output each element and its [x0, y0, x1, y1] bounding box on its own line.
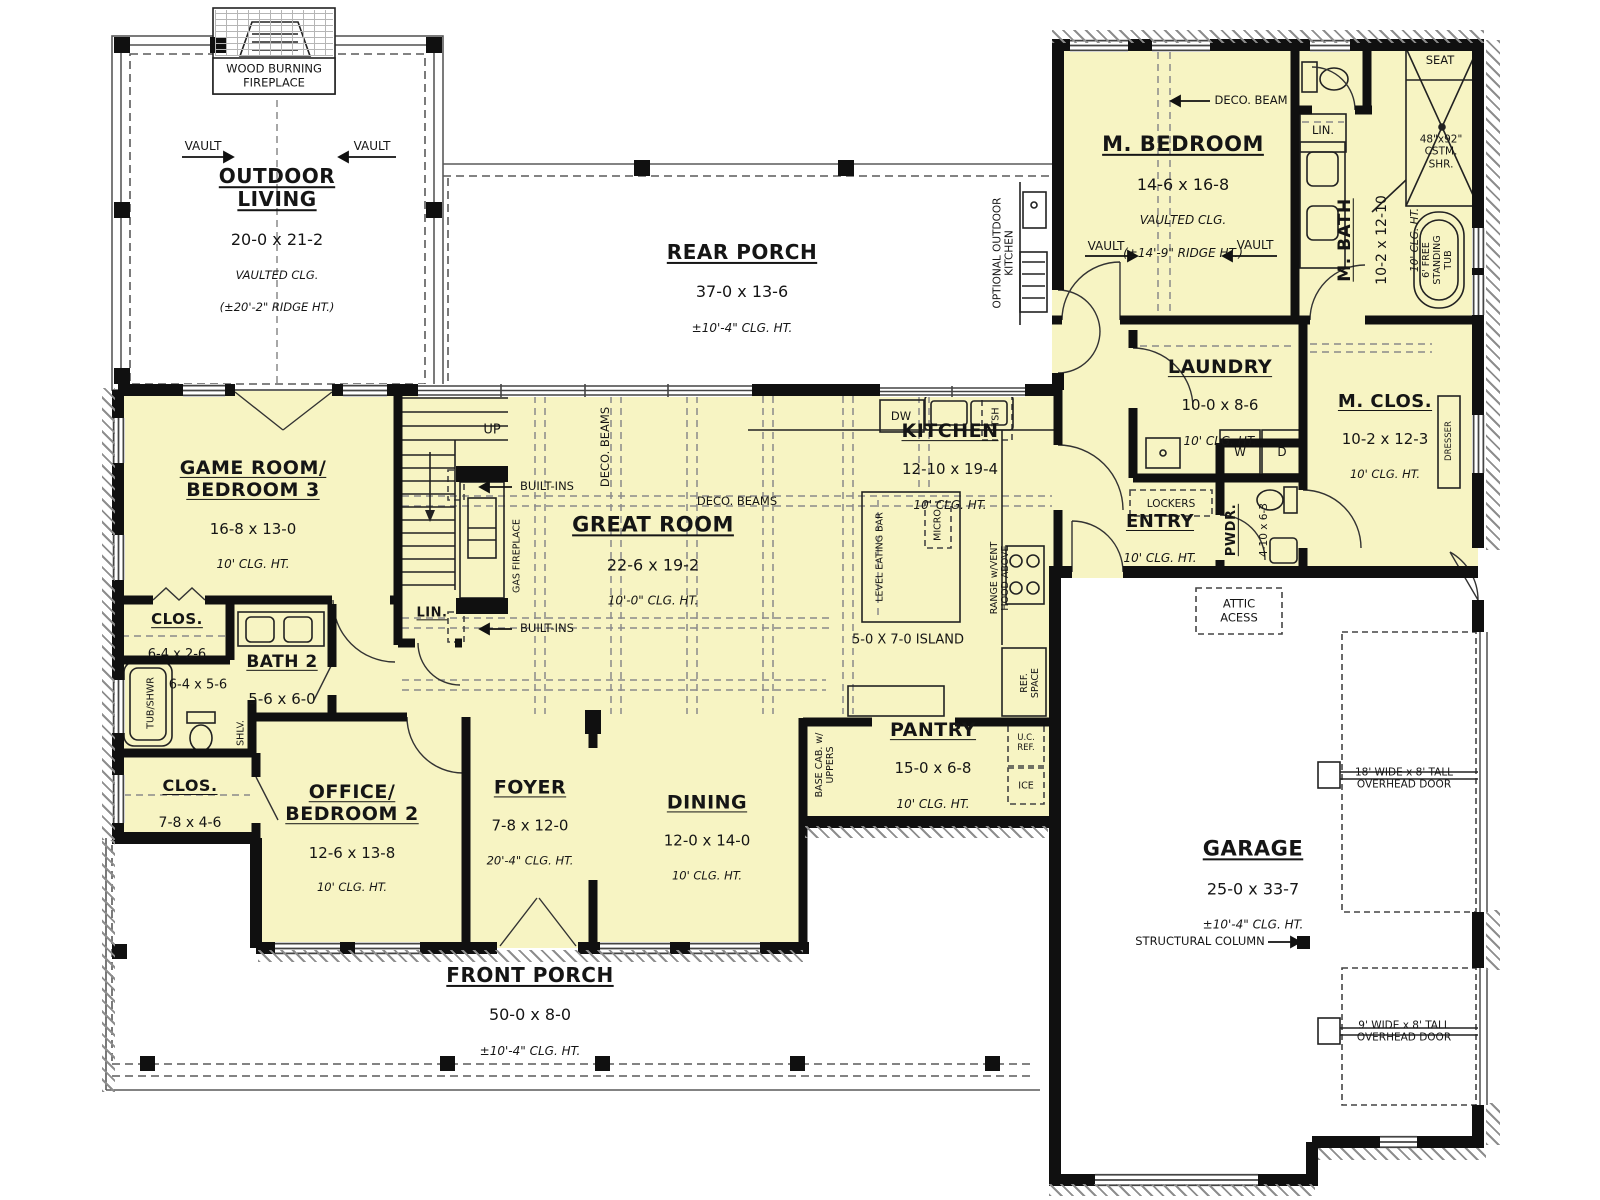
room-label-great-room: GREAT ROOM 22-6 x 19-2 10'-0" CLG. HT.: [572, 493, 734, 626]
wood-fireplace-label: WOOD BURNING FIREPLACE: [226, 62, 322, 89]
range-label: RANGE w/VENT HOOD ABOVE: [989, 542, 1011, 615]
room-label-pwdr: PWDR. 4-10 x 6-3: [1205, 503, 1289, 557]
hatch-band: [1318, 1148, 1486, 1160]
bath2-alcove-dims: 6-4 x 5-6: [169, 677, 227, 692]
dresser-label: DRESSER: [1444, 421, 1454, 461]
built-ins-label: BUILT-INS: [520, 622, 574, 636]
dryer-label: D: [1277, 445, 1286, 459]
deco-beam-label: DECO. BEAM: [1215, 94, 1288, 108]
floor-plan: WOOD BURNING FIREPLACE VAULT VAULT OUTDO…: [0, 0, 1600, 1200]
attic-access-label: ATTIC ACESS: [1220, 597, 1258, 624]
custom-shower-label: 48"x92" CSTM. SHR.: [1420, 133, 1463, 170]
eating-bar-label: LEVEL EATING BAR: [874, 512, 885, 602]
overhead-door-9-label: 9' WIDE x 8' TALL OVERHEAD DOOR: [1357, 1020, 1451, 1045]
vault-label: VAULT: [185, 139, 222, 153]
optional-outdoor-kitchen-label: OPTIONAL OUTDOOR KITCHEN: [992, 198, 1017, 309]
trash-label: TSH: [990, 408, 1001, 427]
island-label: 5-0 X 7-0 ISLAND: [852, 632, 964, 647]
vault-label: VAULT: [1088, 239, 1125, 253]
built-ins-label: BUILT-INS: [520, 480, 574, 494]
room-label-kitchen: KITCHEN 12-10 x 19-4 10' CLG. HT.: [902, 401, 999, 531]
shelves-label: SHLV.: [235, 720, 246, 746]
room-label-bath2: BATH 2 5-6 x 6-0: [246, 633, 317, 727]
tub-shwr-label: TUB/SHWR: [145, 677, 156, 729]
hatch-band: [1049, 1184, 1315, 1196]
room-label-m-bedroom: M. BEDROOM 14-6 x 16-8 VAULTED CLG. (±14…: [1102, 113, 1264, 279]
ice-label: ICE: [1018, 780, 1033, 791]
freestanding-tub-label: 6' FREE STANDING TUB: [1421, 235, 1455, 284]
linen-label: LIN.: [1312, 124, 1334, 138]
uc-ref-label: U.C. REF.: [1017, 733, 1035, 753]
ref-space-label: REF. SPACE: [1019, 668, 1041, 698]
overhead-door-18-label: 18' WIDE x 8' TALL OVERHEAD DOOR: [1355, 767, 1453, 792]
up-label: UP: [483, 422, 500, 437]
deco-beams-label: DECO. BEAMS: [599, 407, 613, 487]
seat-label: SEAT: [1426, 54, 1455, 68]
room-label-rear-porch: REAR PORCH 37-0 x 13-6 ±10'-4" CLG. HT.: [667, 222, 817, 354]
room-label-m-clos: M. CLOS. 10-2 x 12-3 10' CLG. HT.: [1338, 372, 1432, 500]
dishwasher-label: DW: [891, 410, 911, 424]
hatch-band: [102, 388, 115, 840]
room-label-office: OFFICE/ BEDROOM 2 12-6 x 13-8 10' CLG. H…: [285, 762, 418, 914]
room-label-hall-closet: CLOS. 6-4 x 2-6: [148, 592, 206, 682]
hatch-band: [1486, 910, 1500, 970]
hatch-band: [102, 840, 115, 1092]
fireplace-brick-hatch: [215, 10, 333, 56]
washer-label: W: [1234, 445, 1246, 459]
room-label-pantry: PANTRY 15-0 x 6-8 10' CLG. HT.: [890, 700, 976, 830]
room-label-foyer: FOYER 7-8 x 12-0 20'-4" CLG. HT.: [487, 757, 574, 886]
hatch-band: [1486, 40, 1500, 550]
deco-beams-label: DECO. BEAMS: [697, 495, 777, 509]
microwave-label: MICRO: [932, 509, 943, 541]
room-label-laundry: LAUNDRY 10-0 x 8-6 10' CLG. HT.: [1168, 337, 1272, 467]
base-cab-label: BASE CAB. w/ UPPERS: [814, 733, 836, 798]
room-label-outdoor-living: OUTDOOR LIVING 20-0 x 21-2 VAULTED CLG. …: [219, 146, 335, 334]
room-label-entry: ENTRY 10' CLG. HT.: [1123, 492, 1196, 584]
room-label-dining: DINING 12-0 x 14-0 10' CLG. HT.: [664, 772, 751, 901]
vault-label: VAULT: [354, 139, 391, 153]
gas-fireplace-label: GAS FIREPLACE: [511, 519, 522, 593]
room-label-garage: GARAGE 25-0 x 33-7 ±10'-4" CLG. HT.: [1203, 817, 1304, 950]
structural-column-label: STRUCTURAL COLUMN: [1135, 935, 1265, 949]
room-label-game-room: GAME ROOM/ BEDROOM 3 16-8 x 13-0 10' CLG…: [180, 438, 327, 590]
linen-label: LIN.: [417, 605, 448, 620]
room-label-front-porch: FRONT PORCH 50-0 x 8-0 ±10'-4" CLG. HT.: [446, 945, 613, 1077]
room-label-bed2-closet: CLOS. 7-8 x 4-6: [159, 758, 222, 850]
vault-label: VAULT: [1237, 238, 1274, 252]
hatch-band: [1052, 30, 1484, 43]
hatch-band: [1486, 1103, 1500, 1145]
